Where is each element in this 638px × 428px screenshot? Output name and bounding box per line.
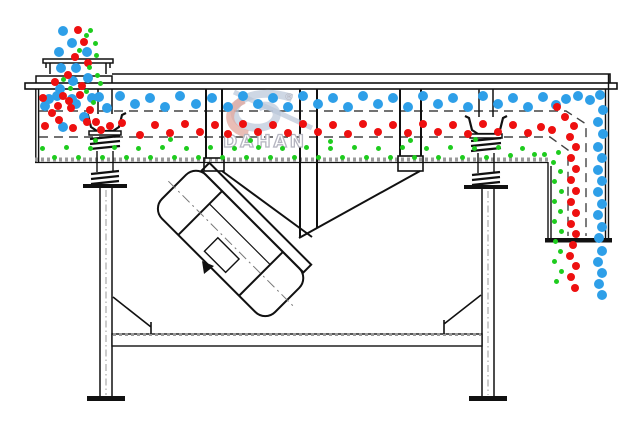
particle-dot-coarse-blue (593, 187, 603, 197)
particle-dot-medium-red (55, 116, 63, 124)
particle-dot-coarse-blue (102, 103, 112, 113)
particle-dot-fine-green (556, 150, 561, 155)
particle-dot-coarse-blue (573, 91, 583, 101)
particle-dot-fine-green (98, 81, 103, 86)
particle-dot-medium-red (239, 120, 247, 128)
particle-dot-fine-green (408, 138, 413, 143)
particle-dot-medium-red (118, 119, 126, 127)
particle-dot-medium-red (548, 126, 556, 134)
particle-dot-coarse-blue (593, 165, 603, 175)
particle-dot-medium-red (39, 94, 47, 102)
particle-dot-fine-green (172, 155, 177, 160)
particle-dot-medium-red (196, 128, 204, 136)
particle-dot-fine-green (559, 189, 564, 194)
particle-dot-coarse-blue (561, 94, 571, 104)
particle-dot-fine-green (472, 146, 477, 151)
particle-dot-coarse-blue (58, 26, 68, 36)
particle-dot-coarse-blue (253, 99, 263, 109)
particle-dot-coarse-blue (83, 73, 93, 83)
particle-dot-medium-red (299, 120, 307, 128)
particle-dot-fine-green (168, 137, 173, 142)
particle-dot-fine-green (232, 146, 237, 151)
particle-dot-coarse-blue (160, 102, 170, 112)
particle-dot-fine-green (136, 146, 141, 151)
particle-dot-medium-red (434, 128, 442, 136)
particle-dot-fine-green (184, 146, 189, 151)
particle-dot-fine-green (552, 179, 557, 184)
particle-dot-coarse-blue (207, 93, 217, 103)
particle-dot-medium-red (567, 273, 575, 281)
particle-dot-fine-green (558, 209, 563, 214)
particle-dot-medium-red (254, 128, 262, 136)
particle-dot-coarse-blue (597, 290, 607, 300)
particle-dot-medium-red (269, 121, 277, 129)
particle-dot-fine-green (88, 28, 93, 33)
particle-dot-medium-red (572, 262, 580, 270)
particle-dot-medium-red (92, 118, 100, 126)
particle-dot-fine-green (248, 138, 253, 143)
particle-dot-fine-green (87, 65, 92, 70)
particle-dot-coarse-blue (463, 102, 473, 112)
particle-dot-coarse-blue (597, 199, 607, 209)
particle-dot-medium-red (211, 121, 219, 129)
particle-dot-medium-red (314, 128, 322, 136)
particle-dot-fine-green (328, 146, 333, 151)
particle-dot-fine-green (292, 155, 297, 160)
diagram-canvas: ® DAHAN (0, 0, 638, 428)
particle-dot-fine-green (208, 145, 213, 150)
particle-dot-medium-red (566, 133, 574, 141)
particle-dot-medium-red (572, 165, 580, 173)
particle-dot-coarse-blue (593, 142, 603, 152)
particle-dot-medium-red (567, 198, 575, 206)
particle-dot-fine-green (551, 160, 556, 165)
particle-dot-medium-red (553, 103, 561, 111)
particle-dot-fine-green (364, 155, 369, 160)
particle-dot-coarse-blue (328, 93, 338, 103)
particle-dot-medium-red (97, 126, 105, 134)
particle-dot-coarse-blue (597, 222, 607, 232)
particle-dot-medium-red (41, 122, 49, 130)
particle-dot-coarse-blue (403, 102, 413, 112)
particle-dot-coarse-blue (115, 91, 125, 101)
particle-dot-medium-red (479, 120, 487, 128)
particle-dot-medium-red (359, 120, 367, 128)
particle-dot-coarse-blue (175, 91, 185, 101)
particle-dot-medium-red (464, 130, 472, 138)
particle-dot-coarse-blue (448, 93, 458, 103)
particle-dot-medium-red (106, 122, 114, 130)
particle-dot-medium-red (71, 53, 79, 61)
particle-dot-medium-red (494, 128, 502, 136)
particle-dot-fine-green (220, 155, 225, 160)
particle-dot-medium-red (54, 102, 62, 110)
particle-dot-coarse-blue (433, 99, 443, 109)
particle-dot-medium-red (136, 131, 144, 139)
particle-dot-coarse-blue (595, 90, 605, 100)
particle-dot-coarse-blue (597, 246, 607, 256)
particle-dot-coarse-blue (130, 99, 140, 109)
particle-dot-fine-green (448, 145, 453, 150)
particle-dot-medium-red (344, 130, 352, 138)
particle-dot-medium-red (389, 121, 397, 129)
particle-dot-fine-green (68, 86, 73, 91)
particle-dot-medium-red (65, 97, 73, 105)
particle-dot-coarse-blue (598, 105, 608, 115)
particle-dot-medium-red (572, 143, 580, 151)
particle-dot-fine-green (532, 152, 537, 157)
particle-dot-medium-red (69, 124, 77, 132)
particle-dot-fine-green (124, 155, 129, 160)
particle-dot-medium-red (48, 109, 56, 117)
particle-dot-fine-green (88, 146, 93, 151)
particle-dot-medium-red (572, 230, 580, 238)
particle-dot-medium-red (166, 129, 174, 137)
particle-dot-fine-green (558, 249, 563, 254)
particle-dot-coarse-blue (268, 93, 278, 103)
particle-dot-fine-green (91, 100, 96, 105)
particle-dot-fine-green (412, 155, 417, 160)
particle-dot-fine-green (280, 146, 285, 151)
particle-dot-fine-green (460, 155, 465, 160)
particle-dot-coarse-blue (145, 93, 155, 103)
particle-dot-fine-green (64, 145, 69, 150)
particle-dot-medium-red (569, 241, 577, 249)
particle-dot-fine-green (552, 199, 557, 204)
particle-dot-medium-red (284, 129, 292, 137)
particle-dot-fine-green (244, 155, 249, 160)
particle-dot-medium-red (74, 26, 82, 34)
particle-dot-coarse-blue (597, 176, 607, 186)
particle-dot-coarse-blue (313, 99, 323, 109)
particle-dot-medium-red (449, 121, 457, 129)
particle-dot-fine-green (95, 73, 100, 78)
particle-dot-coarse-blue (508, 93, 518, 103)
particle-dot-coarse-blue (598, 129, 608, 139)
particle-dot-medium-red (572, 209, 580, 217)
particle-dot-coarse-blue (493, 99, 503, 109)
particle-dot-coarse-blue (523, 102, 533, 112)
particle-dot-fine-green (328, 139, 333, 144)
particle-dot-fine-green (520, 146, 525, 151)
particle-dot-medium-red (509, 121, 517, 129)
particle-dot-fine-green (552, 259, 557, 264)
particle-layer (0, 0, 638, 428)
particle-dot-fine-green (496, 145, 501, 150)
particle-dot-fine-green (436, 155, 441, 160)
particle-dot-medium-red (51, 78, 59, 86)
particle-dot-medium-red (67, 104, 75, 112)
particle-dot-coarse-blue (594, 279, 604, 289)
particle-dot-fine-green (61, 77, 66, 82)
particle-dot-coarse-blue (597, 268, 607, 278)
particle-dot-coarse-blue (418, 91, 428, 101)
particle-dot-fine-green (148, 155, 153, 160)
particle-dot-coarse-blue (283, 102, 293, 112)
particle-dot-fine-green (304, 145, 309, 150)
particle-dot-coarse-blue (593, 257, 603, 267)
particle-dot-fine-green (558, 169, 563, 174)
particle-dot-fine-green (93, 138, 98, 143)
particle-dot-medium-red (567, 176, 575, 184)
particle-dot-fine-green (340, 155, 345, 160)
particle-dot-coarse-blue (82, 47, 92, 57)
particle-dot-coarse-blue (597, 153, 607, 163)
particle-dot-fine-green (196, 155, 201, 160)
particle-dot-fine-green (559, 269, 564, 274)
particle-dot-coarse-blue (585, 95, 595, 105)
particle-dot-fine-green (93, 41, 98, 46)
particle-dot-fine-green (352, 145, 357, 150)
particle-dot-fine-green (376, 146, 381, 151)
particle-dot-fine-green (508, 153, 513, 158)
particle-dot-fine-green (553, 239, 558, 244)
particle-dot-fine-green (268, 155, 273, 160)
particle-dot-coarse-blue (223, 102, 233, 112)
particle-dot-medium-red (374, 128, 382, 136)
particle-dot-coarse-blue (373, 99, 383, 109)
particle-dot-medium-red (76, 91, 84, 99)
particle-dot-coarse-blue (54, 47, 64, 57)
particle-dot-fine-green (256, 145, 261, 150)
particle-dot-medium-red (329, 121, 337, 129)
particle-dot-fine-green (554, 279, 559, 284)
particle-dot-fine-green (52, 155, 57, 160)
particle-dot-fine-green (100, 155, 105, 160)
particle-dot-coarse-blue (238, 91, 248, 101)
particle-dot-medium-red (570, 122, 578, 130)
particle-dot-fine-green (94, 53, 99, 58)
particle-dot-coarse-blue (298, 91, 308, 101)
particle-dot-fine-green (400, 145, 405, 150)
particle-dot-fine-green (316, 155, 321, 160)
particle-dot-fine-green (40, 146, 45, 151)
particle-dot-medium-red (567, 154, 575, 162)
particle-dot-fine-green (388, 155, 393, 160)
particle-dot-coarse-blue (593, 210, 603, 220)
particle-dot-medium-red (151, 121, 159, 129)
particle-dot-coarse-blue (478, 91, 488, 101)
particle-dot-fine-green (559, 229, 564, 234)
particle-dot-medium-red (571, 284, 579, 292)
particle-dot-coarse-blue (538, 92, 548, 102)
particle-dot-medium-red (567, 220, 575, 228)
particle-dot-medium-red (181, 120, 189, 128)
particle-dot-medium-red (80, 38, 88, 46)
particle-dot-fine-green (424, 146, 429, 151)
particle-dot-fine-green (542, 152, 547, 157)
particle-dot-medium-red (537, 123, 545, 131)
particle-dot-coarse-blue (594, 233, 604, 243)
particle-dot-fine-green (112, 145, 117, 150)
particle-dot-medium-red (566, 252, 574, 260)
particle-dot-fine-green (484, 155, 489, 160)
particle-dot-medium-red (419, 120, 427, 128)
particle-dot-fine-green (77, 48, 82, 53)
particle-dot-coarse-blue (71, 63, 81, 73)
particle-dot-medium-red (561, 113, 569, 121)
particle-dot-fine-green (473, 137, 478, 142)
particle-dot-fine-green (84, 89, 89, 94)
particle-dot-coarse-blue (593, 117, 603, 127)
particle-dot-coarse-blue (67, 38, 77, 48)
particle-dot-fine-green (160, 145, 165, 150)
particle-dot-fine-green (76, 155, 81, 160)
particle-dot-coarse-blue (388, 93, 398, 103)
particle-dot-medium-red (524, 129, 532, 137)
particle-dot-coarse-blue (358, 91, 368, 101)
particle-dot-fine-green (552, 219, 557, 224)
particle-dot-medium-red (224, 130, 232, 138)
particle-dot-coarse-blue (191, 99, 201, 109)
particle-dot-medium-red (86, 106, 94, 114)
particle-dot-medium-red (83, 118, 91, 126)
particle-dot-fine-green (84, 33, 89, 38)
particle-dot-medium-red (572, 187, 580, 195)
particle-dot-medium-red (404, 129, 412, 137)
particle-dot-coarse-blue (343, 102, 353, 112)
